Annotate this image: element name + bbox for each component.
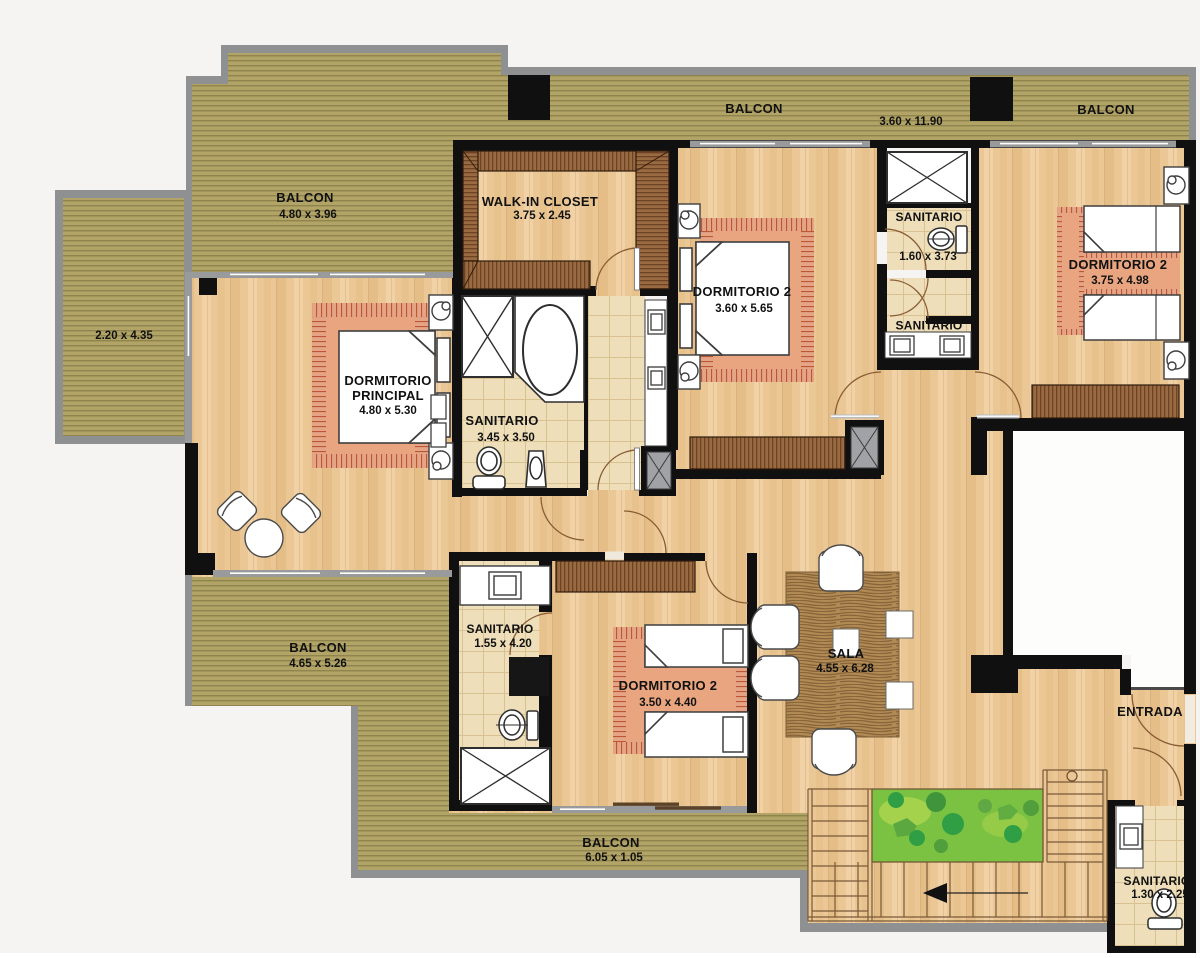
svg-text:BALCON: BALCON <box>276 190 333 205</box>
svg-text:3.45 x 3.50: 3.45 x 3.50 <box>477 432 535 444</box>
svg-text:BALCON: BALCON <box>289 640 346 655</box>
svg-text:DORMITORIO: DORMITORIO <box>344 373 431 388</box>
svg-text:SALA: SALA <box>828 646 865 661</box>
svg-text:1.60 x 3.73: 1.60 x 3.73 <box>899 251 957 263</box>
svg-text:DORMITORIO 2: DORMITORIO 2 <box>693 284 792 299</box>
svg-text:3.75 x 4.98: 3.75 x 4.98 <box>1091 275 1149 287</box>
svg-text:1.30 x 2.25: 1.30 x 2.25 <box>1131 889 1189 901</box>
svg-text:3.60 x 11.90: 3.60 x 11.90 <box>879 116 942 128</box>
svg-text:SANITARIO: SANITARIO <box>896 210 963 224</box>
svg-text:BALCON: BALCON <box>725 101 782 116</box>
svg-text:4.80 x 3.96: 4.80 x 3.96 <box>279 209 337 221</box>
svg-text:3.60 x 5.65: 3.60 x 5.65 <box>715 303 773 315</box>
svg-text:SANITARIO: SANITARIO <box>465 413 538 428</box>
svg-text:4.80 x 5.30: 4.80 x 5.30 <box>359 405 417 417</box>
svg-text:2.20 x 4.35: 2.20 x 4.35 <box>95 330 153 342</box>
svg-text:DORMITORIO 2: DORMITORIO 2 <box>619 678 718 693</box>
svg-text:DORMITORIO 2: DORMITORIO 2 <box>1069 257 1168 272</box>
svg-text:3.75 x 2.45: 3.75 x 2.45 <box>513 210 571 222</box>
svg-text:BALCON: BALCON <box>1077 102 1134 117</box>
svg-text:6.05 x 1.05: 6.05 x 1.05 <box>585 852 643 864</box>
svg-text:4.55 x 6.28: 4.55 x 6.28 <box>816 663 874 675</box>
svg-text:3.50 x 4.40: 3.50 x 4.40 <box>639 697 697 709</box>
svg-text:BALCON: BALCON <box>582 835 639 850</box>
svg-text:4.65 x 5.26: 4.65 x 5.26 <box>289 658 347 670</box>
svg-text:PRINCIPAL: PRINCIPAL <box>352 388 424 403</box>
svg-text:WALK-IN CLOSET: WALK-IN CLOSET <box>482 194 598 209</box>
svg-text:1.55 x 4.20: 1.55 x 4.20 <box>474 638 532 650</box>
svg-text:SANITARIO: SANITARIO <box>1124 874 1191 888</box>
svg-text:SANITARIO: SANITARIO <box>467 622 534 636</box>
svg-text:SANITARIO: SANITARIO <box>896 319 963 333</box>
svg-text:ENTRADA: ENTRADA <box>1117 704 1183 719</box>
